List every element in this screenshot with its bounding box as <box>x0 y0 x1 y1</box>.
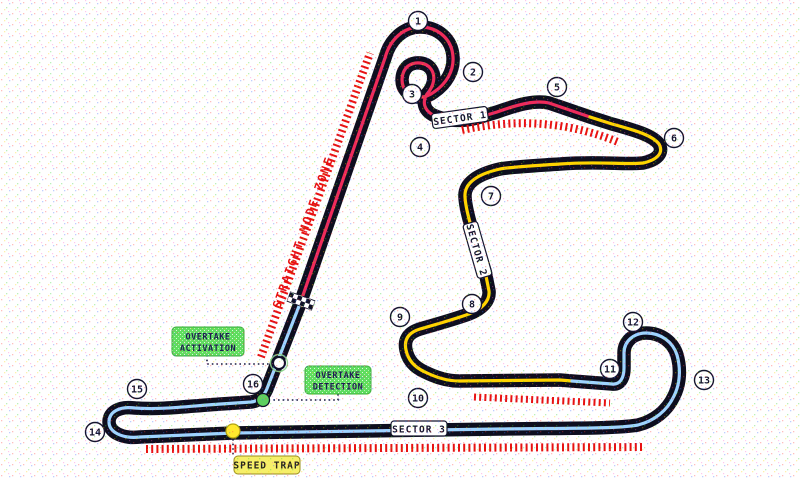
overtake-activation-line2: ACTIVATION <box>180 344 236 354</box>
turn-number-7: 7 <box>488 192 494 203</box>
turn-number-10: 10 <box>412 394 424 405</box>
overtake-detection-line2: DETECTION <box>313 383 364 393</box>
turn-number-16: 16 <box>247 380 259 391</box>
connector-detection <box>272 394 338 400</box>
turn-number-4: 4 <box>417 143 423 154</box>
turn-number-15: 15 <box>131 385 143 396</box>
speed-trap-box: SPEED TRAP <box>233 456 300 474</box>
circuit-svg: 12345678910111213141516 STRAIGHT MODE ZO… <box>0 0 800 480</box>
turn-number-6: 6 <box>671 134 677 145</box>
speed-trap-text: SPEED TRAP <box>233 461 300 472</box>
zone-ticks-turn10 <box>474 397 610 403</box>
sector-2-label: SECTOR 2 <box>463 221 493 279</box>
turn-number-11: 11 <box>604 365 616 376</box>
turn-number-13: 13 <box>698 376 710 387</box>
zone-ticks-back-straight <box>146 447 645 449</box>
overtake-detection-point <box>257 394 270 407</box>
overtake-detection-box: OVERTAKE DETECTION <box>305 366 371 394</box>
speed-trap-point <box>226 424 240 438</box>
overtake-activation-line1: OVERTAKE <box>186 333 231 343</box>
sector-3-text: SECTOR 3 <box>392 425 446 436</box>
turn-number-5: 5 <box>554 83 560 94</box>
sector-1-label: SECTOR 1 <box>431 106 489 129</box>
overtake-activation-point-core <box>273 357 285 369</box>
turn-number-12: 12 <box>627 318 639 329</box>
turn-number-2: 2 <box>470 68 476 79</box>
zone-ticks-sector1 <box>462 123 618 142</box>
turn-number-3: 3 <box>409 90 415 101</box>
overtake-activation-box: OVERTAKE ACTIVATION <box>172 327 244 356</box>
turn-number-1: 1 <box>415 17 421 28</box>
circuit-map: 12345678910111213141516 STRAIGHT MODE ZO… <box>0 0 800 480</box>
track-outline <box>109 27 679 437</box>
turn-number-9: 9 <box>397 313 403 324</box>
turn-number-8: 8 <box>469 300 475 311</box>
sector-3-label: SECTOR 3 <box>391 421 447 436</box>
overtake-detection-line1: OVERTAKE <box>316 371 361 381</box>
turn-number-14: 14 <box>89 428 101 439</box>
